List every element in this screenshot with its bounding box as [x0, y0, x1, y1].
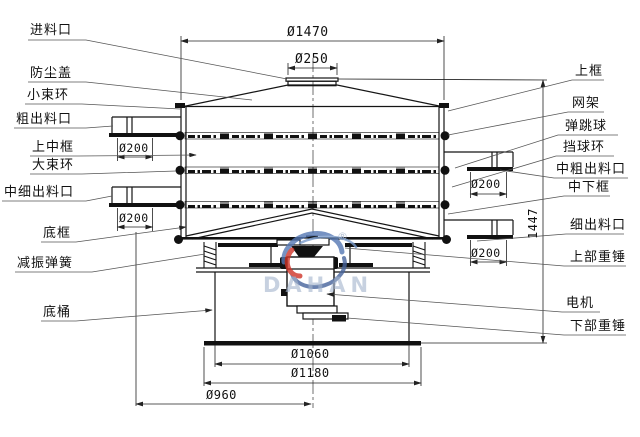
- label-bouncing-ball: 弹跳球: [565, 119, 607, 134]
- label-motor: 电机: [566, 296, 594, 311]
- label-mid-lower-frame: 中下框: [568, 180, 610, 195]
- outlet-mid-coarse-right: [444, 152, 513, 171]
- watermark-brand: DAHAN: [263, 273, 373, 297]
- outlet-fine-right: [444, 220, 513, 239]
- base-plate: [204, 341, 421, 346]
- label-bottom-frame: 底框: [43, 226, 71, 241]
- leader-upper-middle-frame: [30, 155, 196, 156]
- dim-outlet-lower-right: Ø200: [471, 246, 501, 260]
- dim-base-plate-diameter: Ø1180: [291, 366, 330, 380]
- label-feed-inlet: 进料口: [30, 23, 72, 38]
- label-screen-frame: 网架: [572, 96, 600, 111]
- label-ball-stop-ring: 挡球环: [563, 140, 605, 155]
- label-dust-cover: 防尘盖: [30, 66, 72, 81]
- dim-base-half-span: Ø960: [206, 388, 237, 402]
- lid-clamp-left: [175, 103, 185, 108]
- dim-outlet-upper-right: Ø200: [471, 177, 501, 191]
- label-damping-spring: 减振弹簧: [17, 256, 73, 271]
- label-mid-coarse-outlet: 中粗出料口: [556, 162, 626, 177]
- dim-total-height: 1447: [526, 208, 540, 239]
- dust-cover-cone: [181, 85, 444, 107]
- outlet-coarse-left: [109, 117, 181, 137]
- label-upper-frame: 上框: [575, 64, 603, 79]
- screen-band-2: [185, 167, 439, 174]
- label-bottom-barrel: 底桶: [43, 305, 71, 320]
- dimension-lines: [118, 36, 548, 406]
- diagram-canvas: 进料口 防尘盖 小束环 粗出料口 上中框 大束环 中细出料口 底框 减振弹簧 底…: [0, 0, 640, 437]
- label-small-clamp-ring: 小束环: [27, 88, 69, 103]
- label-large-clamp-ring: 大束环: [32, 158, 74, 173]
- dim-body-diameter: Ø1470: [287, 25, 329, 40]
- damping-spring-left: [204, 242, 216, 268]
- lower-eccentric-weight: [332, 315, 346, 322]
- label-mid-fine-outlet: 中细出料口: [4, 185, 74, 200]
- screen-bands: [176, 131, 450, 209]
- screen-band-1: [185, 133, 439, 140]
- label-upper-middle-frame: 上中框: [32, 140, 74, 155]
- dim-inlet-diameter: Ø250: [295, 52, 328, 67]
- screen-band-3: [185, 202, 439, 209]
- label-fine-outlet: 细出料口: [570, 218, 626, 233]
- outlet-mid-fine-left: [109, 187, 181, 207]
- upper-eccentric-weight: [291, 246, 323, 257]
- dim-base-inner-diameter: Ø1060: [291, 347, 330, 361]
- label-coarse-outlet: 粗出料口: [16, 112, 72, 127]
- dim-outlet-lower-left: Ø200: [119, 211, 149, 225]
- damping-spring-right: [413, 242, 425, 268]
- dim-outlet-upper-left: Ø200: [119, 141, 149, 155]
- leader-small-clamp-ring: [25, 104, 180, 109]
- registered-trademark-icon: ®: [337, 230, 348, 243]
- lower-weight-plate-1: [297, 306, 337, 313]
- label-lower-weight: 下部重锤: [570, 319, 626, 334]
- label-upper-weight: 上部重锤: [570, 250, 626, 265]
